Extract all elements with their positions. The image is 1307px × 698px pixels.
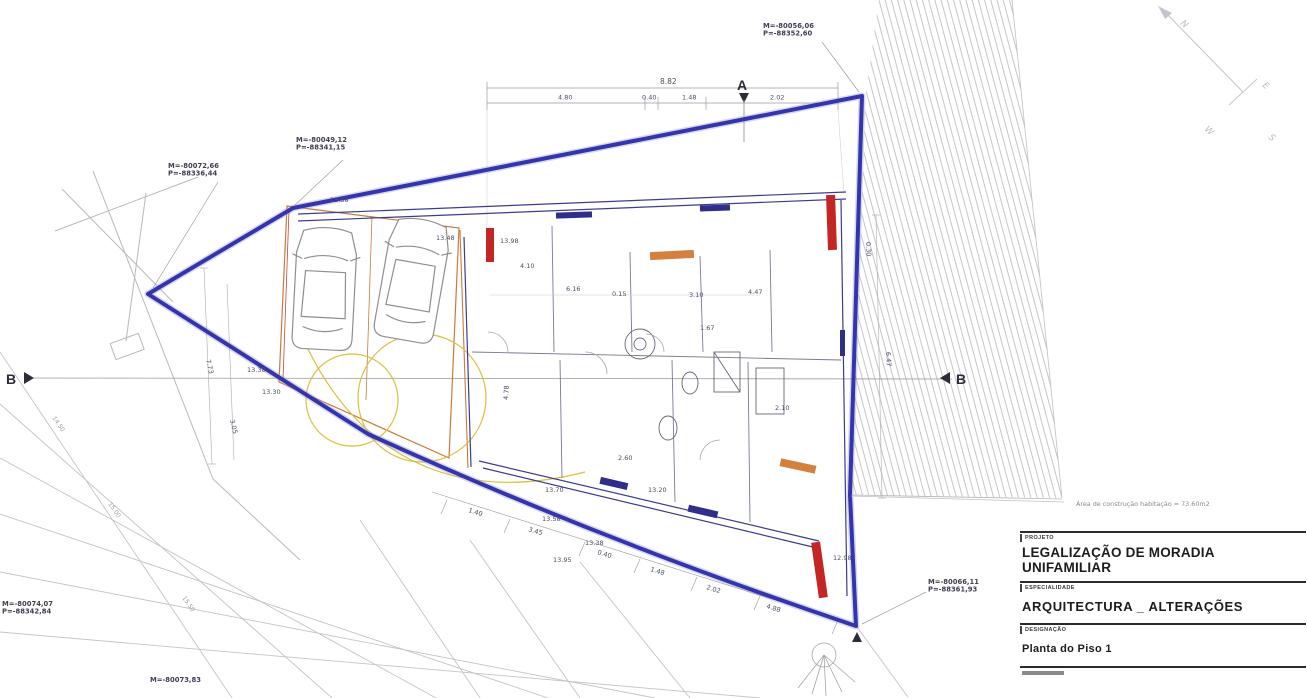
dimension-label: 13.38 bbox=[330, 196, 349, 204]
red-wall-marker bbox=[826, 195, 837, 250]
bathroom-fixtures bbox=[625, 329, 784, 440]
north-compass-icon: N E W S bbox=[1158, 6, 1277, 144]
dimension-label: 12.98 bbox=[833, 554, 852, 562]
title-block-divider bbox=[1020, 531, 1306, 533]
dimension-label: 13.38 bbox=[585, 539, 604, 547]
title-block-divider bbox=[1020, 666, 1306, 668]
dimension-label: 13.98 bbox=[500, 237, 519, 245]
coordinate-label-north-bend: M=-80049,12P=-88341,15 bbox=[296, 136, 347, 152]
top-segment-dimension: 4.80 bbox=[558, 94, 572, 102]
coordinate-label-south-west: M=-80074,07P=-88342,84 bbox=[2, 600, 53, 616]
dimension-label: 1.48 bbox=[649, 565, 665, 577]
dimension-label: 4.47 bbox=[748, 288, 762, 296]
title-block-divider bbox=[1020, 581, 1306, 583]
dimension-label: 3.45 bbox=[527, 525, 543, 537]
contour-lines bbox=[0, 352, 908, 698]
dimension-label: 13.95 bbox=[553, 556, 572, 564]
red-wall-marker bbox=[486, 228, 494, 262]
dimension-label: 1.40 bbox=[467, 506, 483, 518]
window-fills bbox=[556, 204, 845, 518]
door-swings bbox=[488, 332, 720, 460]
top-dimension-labels: 8.824.800.401.482.02 bbox=[558, 77, 784, 102]
bottom-dimension-chain bbox=[432, 492, 845, 634]
area-note: Área de construção habitação = 73.60m2 bbox=[1076, 499, 1210, 508]
drawing-name: Planta do Piso 1 bbox=[1022, 643, 1306, 655]
dimension-label: 15.50 bbox=[180, 595, 196, 613]
top-segment-dimension: 1.48 bbox=[682, 94, 696, 102]
fan-feature bbox=[798, 643, 855, 696]
hatched-area bbox=[851, 0, 1062, 499]
dimension-label: 7.73 bbox=[204, 359, 215, 375]
dimension-label: 2.02 bbox=[705, 583, 721, 595]
garage-zone bbox=[279, 206, 585, 482]
compass-s: S bbox=[1266, 133, 1277, 145]
top-overall-dimension: 8.82 bbox=[660, 77, 677, 86]
dimension-label: 0.30 bbox=[864, 242, 873, 257]
dimension-label: 2.60 bbox=[618, 454, 632, 462]
project-title: LEGALIZAÇÃO DE MORADIA UNIFAMILIAR bbox=[1022, 545, 1306, 575]
title-block: PROJETO LEGALIZAÇÃO DE MORADIA UNIFAMILI… bbox=[1020, 531, 1306, 675]
title-block-field-designation: DESIGNAÇÃO bbox=[1020, 626, 1066, 634]
section-a-letter: A bbox=[737, 77, 747, 93]
dimension-label: 0.15 bbox=[612, 290, 626, 298]
compass-n: N bbox=[1178, 19, 1190, 31]
top-segment-dimension: 0.40 bbox=[642, 94, 656, 102]
red-wall-marker bbox=[811, 542, 828, 599]
car-icon bbox=[288, 226, 362, 351]
house-plan bbox=[298, 192, 847, 598]
house-walls bbox=[298, 192, 847, 596]
interior-partitions bbox=[472, 226, 841, 522]
truncated-label bbox=[1022, 671, 1064, 675]
coordinate-labels: M=-80072,66P=-88336,44M=-80049,12P=-8834… bbox=[2, 22, 979, 684]
orange-wall-marker bbox=[780, 458, 817, 473]
dimension-label: 6.16 bbox=[566, 285, 580, 293]
coordinate-label-north-east: M=-80056,06P=-88352,60 bbox=[763, 22, 814, 38]
specialty-title: ARQUITECTURA _ ALTERAÇÕES bbox=[1022, 599, 1306, 614]
title-block-field-project: PROJETO bbox=[1020, 534, 1054, 542]
dimension-label: 0.40 bbox=[596, 548, 612, 560]
dimension-label: 4.78 bbox=[502, 385, 511, 400]
dimension-label: 13.70 bbox=[545, 486, 564, 494]
coordinate-label-west-tip: M=-80072,66P=-88336,44 bbox=[168, 162, 219, 178]
turning-circles bbox=[300, 332, 585, 482]
site-plan-page: B B A bbox=[0, 0, 1307, 698]
dimension-label: 4.10 bbox=[520, 262, 534, 270]
section-marker-b-left: B bbox=[6, 371, 16, 387]
dimension-label: 6.47 bbox=[884, 352, 893, 367]
coordinate-leaders bbox=[153, 42, 926, 624]
dimension-label: 13.58 bbox=[542, 515, 561, 523]
dimension-label: 2.10 bbox=[775, 404, 789, 412]
dimension-labels: 4.106.160.153.104.474.786.470.3013.7013.… bbox=[50, 196, 892, 614]
title-block-divider bbox=[1020, 623, 1306, 625]
section-line-bb: B B bbox=[6, 371, 966, 387]
dimension-label: 13.38 bbox=[247, 366, 266, 374]
coordinate-label-south: M=-80073,83 bbox=[150, 676, 201, 684]
dimension-label: 3.05 bbox=[228, 419, 239, 435]
dimension-label: 13.48 bbox=[436, 234, 455, 242]
dimension-label: 3.10 bbox=[689, 291, 703, 299]
orange-wall-marker bbox=[650, 250, 694, 260]
section-marker-b-right: B bbox=[956, 371, 966, 387]
top-segment-dimension: 2.02 bbox=[770, 94, 784, 102]
left-dimension-lines bbox=[200, 268, 234, 464]
compass-w: W bbox=[1202, 125, 1216, 139]
dimension-label: 1.67 bbox=[700, 324, 714, 332]
coordinate-label-south-east: M=-80066,11P=-88361,93 bbox=[928, 578, 979, 594]
dimension-label: 4.88 bbox=[765, 602, 781, 614]
compass-e: E bbox=[1260, 81, 1271, 93]
site-boundary bbox=[148, 96, 862, 626]
dimension-label: 13.30 bbox=[262, 388, 281, 396]
title-block-field-specialty: ESPECIALIDADE bbox=[1020, 584, 1075, 592]
dimension-label: 13.20 bbox=[648, 486, 667, 494]
